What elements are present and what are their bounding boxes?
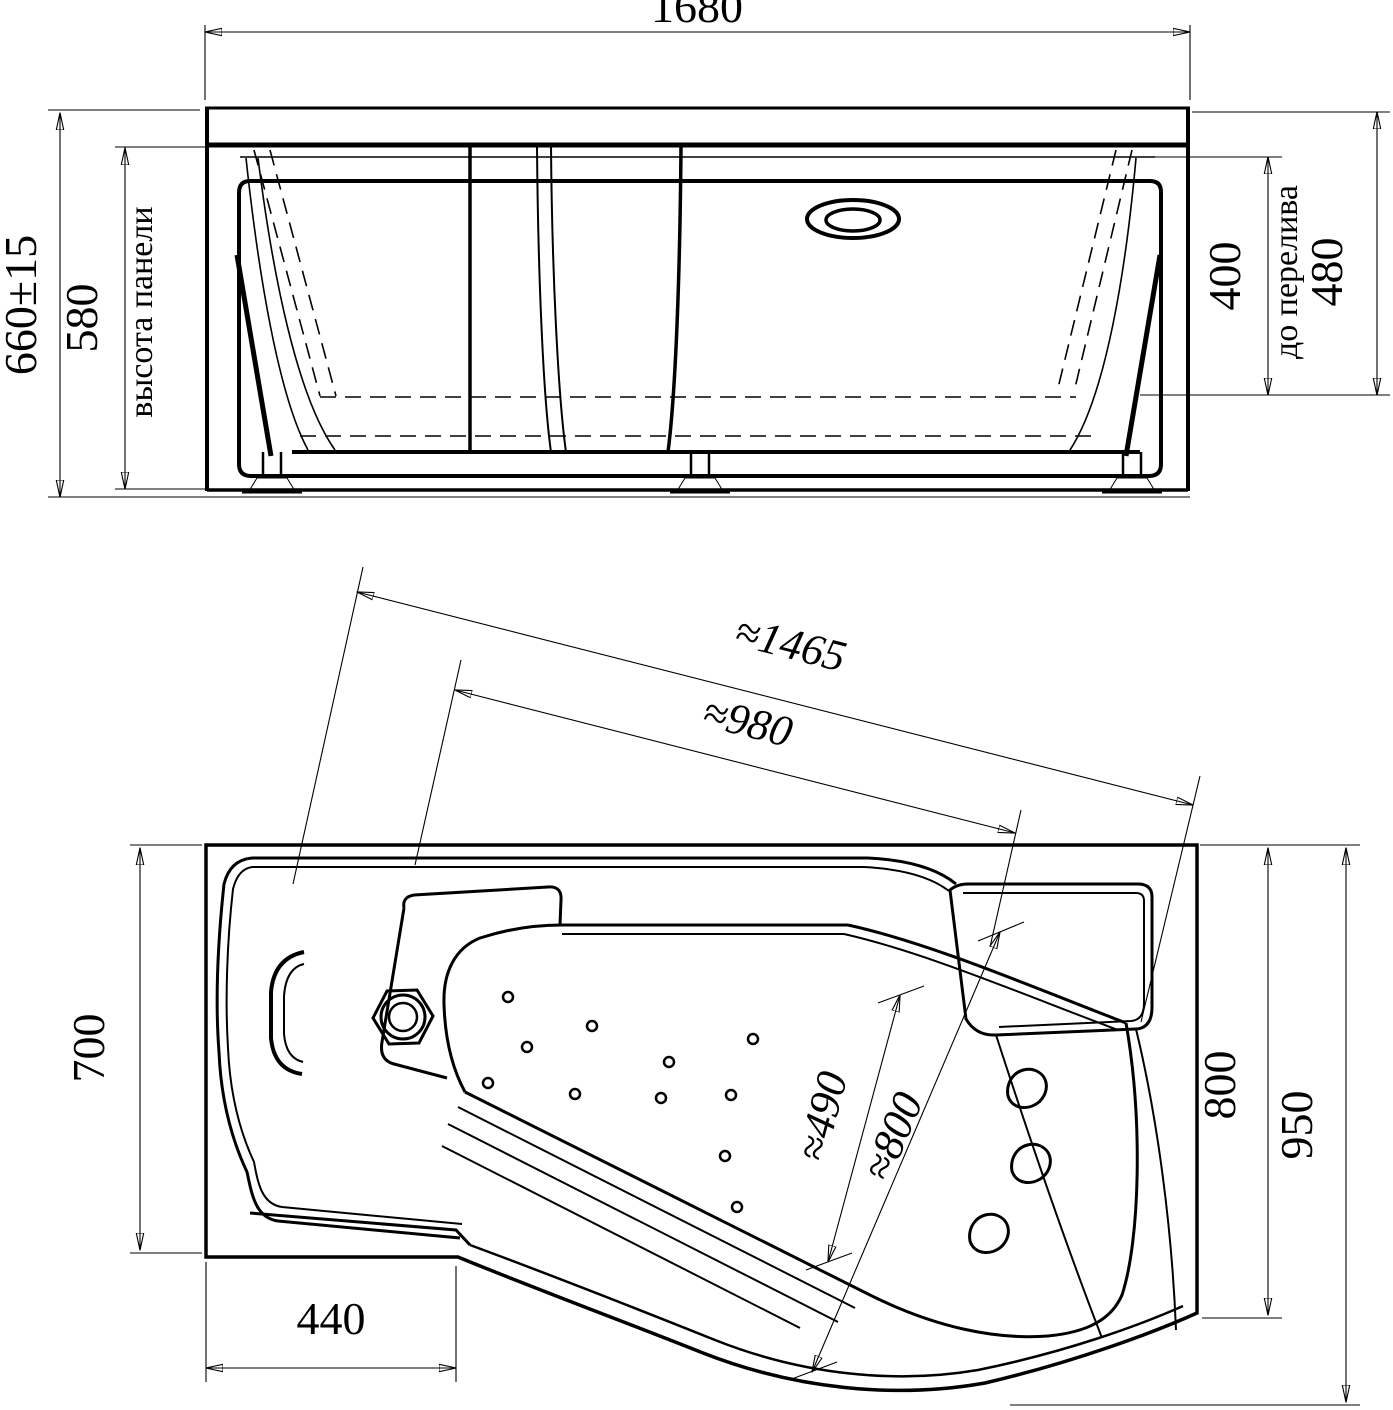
seat-back-line — [1136, 1029, 1176, 1330]
dim-label-diagonal-inner: ≈980 — [698, 687, 797, 757]
dim-label-width: 1680 — [651, 0, 743, 32]
foot — [1102, 452, 1162, 492]
tub-wall-curve — [258, 158, 335, 450]
bathtub-technical-drawing: 1680 660±15 580 высота панели 400 до пер… — [0, 0, 1393, 1410]
tub-wall-curve — [246, 158, 308, 450]
dim-right-outer: 950 — [1010, 848, 1360, 1405]
jet-hole — [503, 992, 513, 1002]
seat-back-line — [996, 1035, 1102, 1338]
ledge-diagonal — [442, 1146, 800, 1328]
head-seat-side — [382, 908, 448, 1078]
plan-view: 700 440 800 950 ≈1465 ≈980 — [63, 567, 1360, 1405]
dim-diagonal-length: ≈1465 — [293, 567, 1200, 1022]
dim-label-inner-width-small: ≈490 — [787, 1066, 858, 1166]
bowl-head-edge — [444, 925, 562, 1092]
dim-note-overflow: до перелива — [1268, 185, 1305, 359]
seam-line — [551, 146, 566, 452]
bowl-foot-edge — [872, 1023, 1137, 1337]
left-leg-brace — [237, 255, 271, 456]
hidden-wall — [254, 150, 320, 396]
foot — [670, 452, 730, 492]
jet-hole — [522, 1042, 532, 1052]
front-view: 1680 660±15 580 высота панели 400 до пер… — [0, 0, 1390, 497]
drain-inner-circle — [389, 1003, 417, 1031]
dim-width-1680: 1680 — [205, 0, 1190, 100]
dim-label-right-inner: 800 — [1194, 1051, 1245, 1120]
tub-rim — [217, 858, 1176, 1338]
dim-label-right-outer: 950 — [1271, 1091, 1322, 1160]
dim-left-width: 700 — [63, 845, 202, 1253]
jet-hole — [570, 1089, 580, 1099]
dim-panel-height: 580 высота панели — [56, 147, 237, 489]
dim-label-diagonal-length: ≈1465 — [730, 606, 851, 681]
head-end-outer — [217, 858, 460, 1238]
jet-hole — [483, 1078, 493, 1088]
dim-rim-height: 480 — [1140, 112, 1390, 395]
tub-bowl — [271, 887, 1137, 1337]
feet — [242, 452, 1162, 492]
dim-label-panel-height: 580 — [56, 284, 107, 353]
headrest-hole — [1012, 1144, 1051, 1182]
dim-right-inner: 800 — [1194, 845, 1360, 1318]
dim-label-inner-width-large: ≈800 — [852, 1085, 932, 1187]
seam-line — [537, 146, 551, 452]
jet-nozzles — [483, 992, 758, 1212]
front-panel — [239, 181, 1161, 476]
seat-platform-outer — [950, 884, 1152, 1035]
headrest-hole — [970, 1214, 1009, 1252]
head-seat-edge — [404, 887, 561, 925]
hidden-tub-lines — [254, 150, 1132, 436]
dim-label-overflow-depth: 400 — [1199, 242, 1250, 311]
jet-hole — [656, 1093, 666, 1103]
jet-hole — [732, 1202, 742, 1212]
ledge-diagonal — [448, 1124, 838, 1322]
jet-hole — [720, 1151, 730, 1161]
front-view-outline — [48, 108, 1190, 497]
jet-hole — [748, 1034, 758, 1044]
dim-label-total-height: 660±15 — [0, 235, 46, 375]
front-panel-seams — [237, 146, 1160, 456]
jet-hole — [664, 1057, 674, 1067]
overflow-inner-ring — [826, 209, 880, 231]
dim-label-left-width: 700 — [63, 1014, 114, 1083]
hidden-wall — [270, 150, 336, 396]
overflow-drain — [807, 200, 899, 238]
grab-handle — [271, 952, 304, 1074]
grab-handle-inner — [284, 964, 304, 1062]
jet-hole — [587, 1021, 597, 1031]
seat-platform-inner — [963, 893, 1144, 1027]
dim-bottom-offset: 440 — [206, 1262, 456, 1382]
right-leg-brace — [1126, 255, 1160, 456]
drawing-canvas: 1680 660±15 580 высота панели 400 до пер… — [0, 0, 1393, 1410]
jet-hole — [726, 1090, 736, 1100]
rim-sweep-inner — [844, 934, 1118, 1030]
rim-sweep-outer — [848, 925, 1126, 1023]
dim-diagonal-inner: ≈980 — [415, 660, 1021, 947]
dim-overflow-depth: 400 до перелива — [1150, 157, 1305, 395]
rim-top-inner — [252, 867, 949, 891]
head-end-inner — [227, 867, 462, 1224]
seam-line — [668, 146, 681, 452]
dim-label-bottom-offset: 440 — [297, 1293, 366, 1344]
dim-label-rim-height: 480 — [1301, 238, 1352, 307]
rim-top-outer — [252, 858, 956, 884]
foot — [242, 452, 302, 492]
dim-note-panel-height: высота панели — [123, 206, 160, 417]
